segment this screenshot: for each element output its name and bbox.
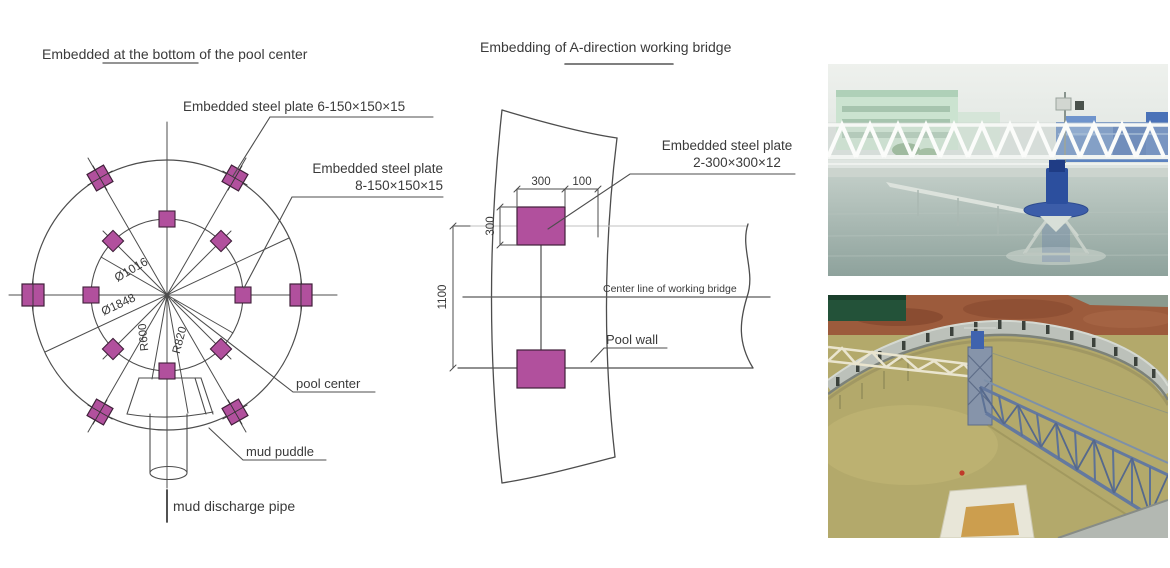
photo-pool-truss-bridge <box>828 295 1168 538</box>
engineering-drawings: Embedded at the bottom of the pool cente… <box>0 0 830 568</box>
title-part1: Embedded <box>42 46 114 62</box>
mud-puddle-shape <box>127 378 213 417</box>
photo-clarifier-working-bridge <box>828 64 1168 276</box>
label-mud-discharge-pipe: mud discharge pipe <box>173 498 295 514</box>
drive-motor <box>1046 168 1068 204</box>
plate-outer-left <box>22 279 44 311</box>
red-float <box>959 470 964 475</box>
plate-outer-bottom-left <box>81 393 119 431</box>
pool-center-plan-diagram: Embedded at the bottom of the pool cente… <box>9 46 443 522</box>
label-pool-wall: Pool wall <box>606 332 658 347</box>
dim-plate-height: 300 <box>485 216 497 235</box>
label-plate8-line1: Embedded steel plate <box>312 161 443 176</box>
label-bridge-plate-line1: Embedded steel plate <box>662 138 793 153</box>
label-plate8-line2: 8-150×150×15 <box>355 178 443 193</box>
dim-r600: R600 <box>137 323 151 351</box>
plate-inner-right <box>235 287 251 303</box>
label-pool-center: pool center <box>296 376 361 391</box>
label-plate6: Embedded steel plate 6-150×150×15 <box>183 99 405 114</box>
label-mud-puddle: mud puddle <box>246 444 314 459</box>
pool-rim <box>828 168 1168 177</box>
plate-outer-top-left <box>81 159 119 197</box>
label-center-line: Center line of working bridge <box>603 283 737 295</box>
plate-outer-bottom-right <box>216 393 254 431</box>
white-box-structure <box>940 485 1034 538</box>
middle-diagram-title: Embedding of A-direction working bridge <box>480 39 732 55</box>
dim-edge-offset: 100 <box>572 176 591 188</box>
green-shed <box>828 295 906 321</box>
plate-inner-top <box>159 211 175 227</box>
plate-outer-right <box>290 279 312 311</box>
working-bridge-embedding-diagram: Embedding of A-direction working bridge <box>437 39 795 483</box>
drive-platform <box>1024 202 1088 218</box>
title-part3: the pool center <box>215 46 308 62</box>
title-part2-underlined: at the bottom of <box>114 46 215 62</box>
dim-plate-spacing: 1100 <box>437 285 449 310</box>
leader-pool-wall <box>591 348 667 362</box>
label-bridge-plate-line2: 2-300×300×12 <box>693 155 781 170</box>
figure-canvas: Embedded at the bottom of the pool cente… <box>0 0 1170 568</box>
blue-cab <box>971 331 984 349</box>
plate-outer-top-right <box>216 159 254 197</box>
working-bridge-truss <box>828 122 1168 164</box>
bridge-plate-bottom <box>517 350 565 388</box>
break-line <box>741 224 753 368</box>
plate-inner-bottom <box>159 363 175 379</box>
photo-top-scene <box>828 64 1168 276</box>
plate-inner-left <box>83 287 99 303</box>
leader-plate8 <box>244 197 443 288</box>
dim-plate-width: 300 <box>531 176 550 188</box>
left-diagram-title: Embedded at the bottom of the pool cente… <box>42 46 308 62</box>
photo-bottom-scene <box>828 295 1168 538</box>
bridge-plate-top <box>517 207 565 245</box>
